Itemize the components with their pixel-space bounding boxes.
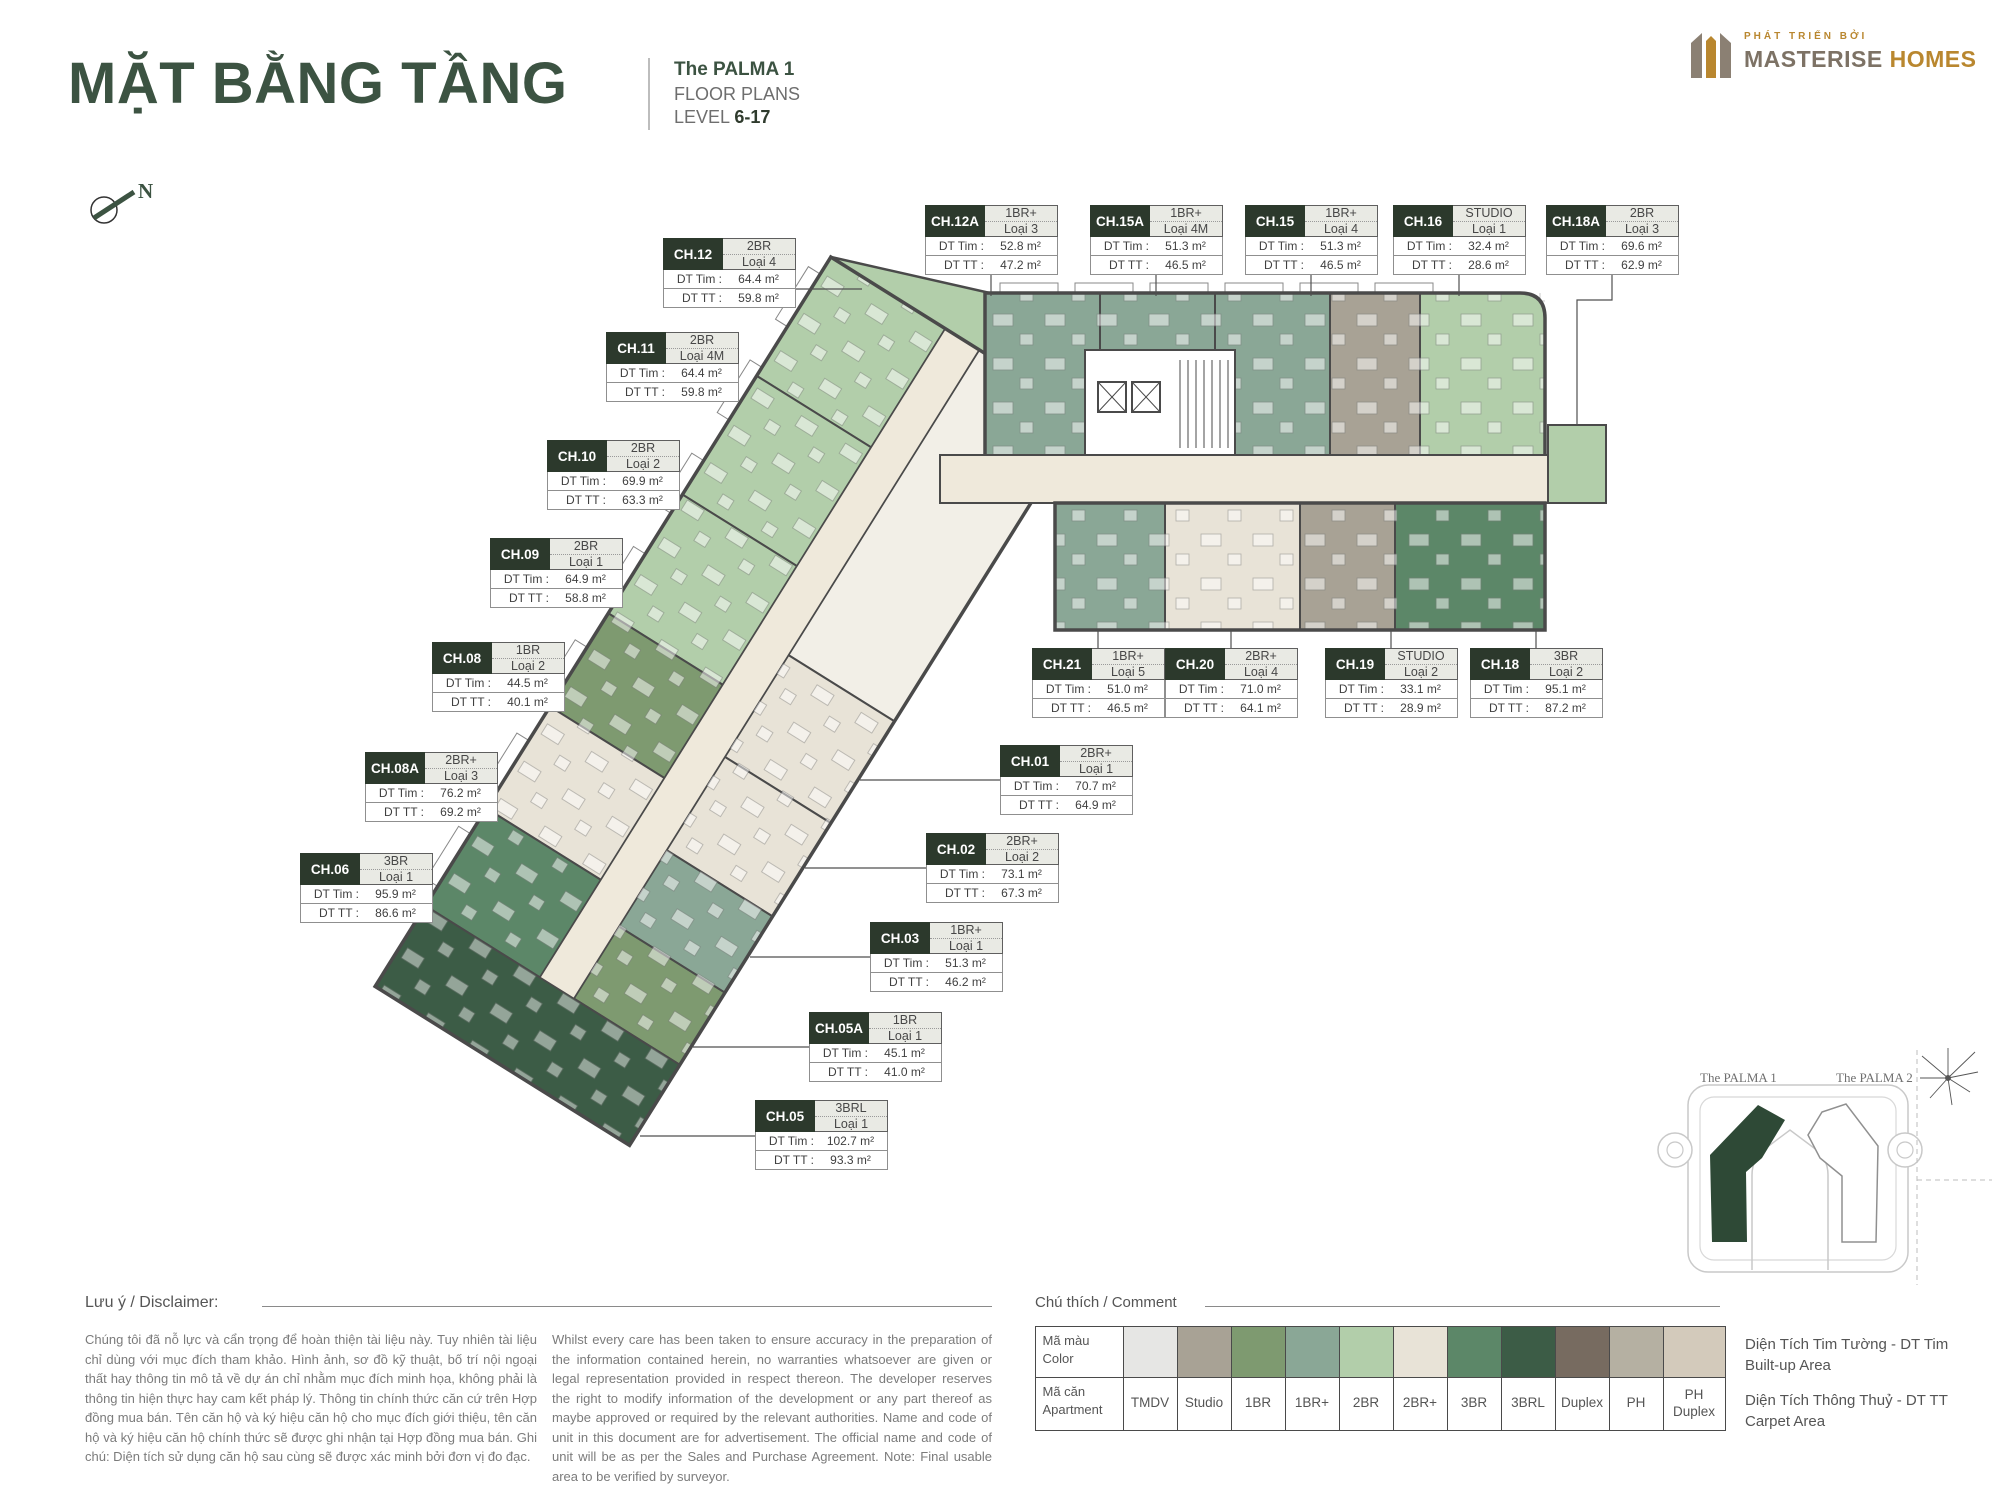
compass-label: N bbox=[138, 179, 153, 203]
legend-table: Mã màu Color Mã căn Apartment TMDV Studi… bbox=[1035, 1326, 1725, 1430]
dt-tt-value: 41.0 m² bbox=[868, 1065, 941, 1079]
unit-type: STUDIO bbox=[1453, 206, 1525, 222]
dt-tim-label: DT Tim : bbox=[756, 1134, 814, 1148]
dt-tt-label: DT TT : bbox=[871, 975, 929, 989]
unit-code: CH.01 bbox=[1000, 745, 1060, 777]
dt-tim-label: DT Tim : bbox=[1091, 239, 1149, 253]
unit-code: CH.11 bbox=[606, 332, 666, 364]
dt-tt-label: DT TT : bbox=[1166, 701, 1224, 715]
dt-tim-value: 76.2 m² bbox=[424, 786, 497, 800]
masterise-logo-mark bbox=[1688, 28, 1734, 80]
unit-variant: Loại 2 bbox=[1530, 665, 1602, 680]
dt-tt-label: DT TT : bbox=[810, 1065, 868, 1079]
minimap-compass-icon bbox=[1920, 1048, 1978, 1105]
legend-swatch bbox=[1555, 1326, 1610, 1378]
dt-tim-value: 102.7 m² bbox=[814, 1134, 887, 1148]
dt-tt-value: 87.2 m² bbox=[1529, 701, 1602, 715]
unit-variant: Loại 4 bbox=[723, 255, 795, 270]
legend-builtup-note: Diện Tích Tim Tường - DT Tim Built-up Ar… bbox=[1745, 1334, 1995, 1376]
unit-code: CH.10 bbox=[547, 440, 607, 472]
callout-ch18: CH.183BRLoại 2DT Tim :95.1 m²DT TT :87.2… bbox=[1470, 648, 1603, 718]
unit-variant: Loại 1 bbox=[550, 555, 622, 570]
unit-code: CH.15 bbox=[1245, 205, 1305, 237]
unit-variant: Loại 2 bbox=[492, 659, 564, 674]
dt-tt-label: DT TT : bbox=[1326, 701, 1384, 715]
logo-brand: MASTERISE HOMES bbox=[1744, 46, 1976, 73]
dt-tim-value: 45.1 m² bbox=[868, 1046, 941, 1060]
minimap-palma1-label: The PALMA 1 bbox=[1700, 1070, 1777, 1085]
unit-code: CH.12 bbox=[663, 238, 723, 270]
dt-tim-label: DT Tim : bbox=[1547, 239, 1605, 253]
unit-code: CH.02 bbox=[926, 833, 986, 865]
disclaimer-rule bbox=[262, 1306, 992, 1307]
dt-tt-value: 69.2 m² bbox=[424, 805, 497, 819]
unit-type: 1BR+ bbox=[1305, 206, 1377, 222]
dt-tt-label: DT TT : bbox=[607, 385, 665, 399]
unit-variant: Loại 1 bbox=[360, 870, 432, 885]
unit-code: CH.16 bbox=[1393, 205, 1453, 237]
callout-ch05a: CH.05A1BRLoại 1DT Tim :45.1 m²DT TT :41.… bbox=[809, 1012, 942, 1082]
dt-tt-label: DT TT : bbox=[301, 906, 359, 920]
dt-tim-value: 52.8 m² bbox=[984, 239, 1057, 253]
dt-tim-value: 73.1 m² bbox=[985, 867, 1058, 881]
dt-tim-value: 64.9 m² bbox=[549, 572, 622, 586]
dt-tt-label: DT TT : bbox=[548, 493, 606, 507]
legend-swatch bbox=[1447, 1326, 1502, 1378]
dt-tt-value: 59.8 m² bbox=[665, 385, 738, 399]
minimap-palma2-shape bbox=[1808, 1104, 1878, 1242]
project-name: The PALMA 1 bbox=[674, 58, 800, 83]
dt-tt-value: 46.5 m² bbox=[1304, 258, 1377, 272]
unit-code: CH.18 bbox=[1470, 648, 1530, 680]
callout-ch05: CH.053BRLLoại 1DT Tim :102.7 m²DT TT :93… bbox=[755, 1100, 888, 1170]
callout-ch11: CH.112BRLoại 4MDT Tim :64.4 m²DT TT :59.… bbox=[606, 332, 739, 402]
dt-tim-value: 64.4 m² bbox=[722, 272, 795, 286]
legend-type-label: TMDV bbox=[1123, 1377, 1178, 1431]
dt-tim-label: DT Tim : bbox=[548, 474, 606, 488]
dt-tt-value: 59.8 m² bbox=[722, 291, 795, 305]
legend-rule bbox=[1205, 1306, 1720, 1307]
dt-tim-label: DT Tim : bbox=[607, 366, 665, 380]
unit-type: 1BR+ bbox=[985, 206, 1057, 222]
dt-tim-value: 51.3 m² bbox=[1304, 239, 1377, 253]
unit-variant: Loại 4 bbox=[1225, 665, 1297, 680]
legend-type-label: PH Duplex bbox=[1663, 1377, 1726, 1431]
unit-code: CH.03 bbox=[870, 922, 930, 954]
dt-tim-label: DT Tim : bbox=[1326, 682, 1384, 696]
plan-annex bbox=[1548, 425, 1606, 503]
dt-tt-value: 40.1 m² bbox=[491, 695, 564, 709]
dt-tt-value: 47.2 m² bbox=[984, 258, 1057, 272]
unit-type: 2BR+ bbox=[1060, 746, 1132, 762]
dt-tim-label: DT Tim : bbox=[871, 956, 929, 970]
unit-code: CH.21 bbox=[1032, 648, 1092, 680]
masterise-logo: PHÁT TRIỂN BỞI MASTERISE HOMES bbox=[1688, 28, 1976, 80]
unit-variant: Loại 2 bbox=[986, 850, 1058, 865]
dt-tim-label: DT Tim : bbox=[1394, 239, 1452, 253]
dt-tt-label: DT TT : bbox=[491, 591, 549, 605]
legend-type-label: Studio bbox=[1177, 1377, 1232, 1431]
dt-tim-value: 69.6 m² bbox=[1605, 239, 1678, 253]
dt-tim-value: 51.3 m² bbox=[1149, 239, 1222, 253]
callout-ch15a: CH.15A1BR+Loại 4MDT Tim :51.3 m²DT TT :4… bbox=[1090, 205, 1223, 275]
dt-tt-label: DT TT : bbox=[433, 695, 491, 709]
unit-type: 2BR bbox=[1606, 206, 1678, 222]
unit-variant: Loại 4M bbox=[666, 349, 738, 364]
callout-ch16: CH.16STUDIOLoại 1DT Tim :32.4 m²DT TT :2… bbox=[1393, 205, 1526, 275]
dt-tt-label: DT TT : bbox=[1394, 258, 1452, 272]
callout-ch08: CH.081BRLoại 2DT Tim :44.5 m²DT TT :40.1… bbox=[432, 642, 565, 712]
unit-type: 1BR bbox=[492, 643, 564, 659]
minimap-palma2-label: The PALMA 2 bbox=[1836, 1070, 1913, 1085]
unit-type: 2BR+ bbox=[425, 753, 497, 769]
dt-tt-label: DT TT : bbox=[1547, 258, 1605, 272]
dt-tim-label: DT Tim : bbox=[1033, 682, 1091, 696]
unit-code: CH.08A bbox=[365, 752, 425, 784]
unit-variant: Loại 2 bbox=[1385, 665, 1457, 680]
floor-plan-page: N The PALMA 1 The PALMA 2 bbox=[0, 0, 2000, 1500]
level-value: 6-17 bbox=[734, 107, 770, 127]
callout-ch03: CH.031BR+Loại 1DT Tim :51.3 m²DT TT :46.… bbox=[870, 922, 1003, 992]
unit-type: 3BRL bbox=[815, 1101, 887, 1117]
dt-tim-label: DT Tim : bbox=[1166, 682, 1224, 696]
callout-ch06: CH.063BRLoại 1DT Tim :95.9 m²DT TT :86.6… bbox=[300, 853, 433, 923]
unit-type: 1BR bbox=[869, 1013, 941, 1029]
legend-swatch bbox=[1123, 1326, 1178, 1378]
unit-code: CH.06 bbox=[300, 853, 360, 885]
logo-tagline: PHÁT TRIỂN BỞI bbox=[1744, 31, 1976, 42]
dt-tim-label: DT Tim : bbox=[1246, 239, 1304, 253]
legend-swatch bbox=[1177, 1326, 1232, 1378]
dt-tt-label: DT TT : bbox=[927, 886, 985, 900]
unit-variant: Loại 1 bbox=[869, 1029, 941, 1044]
legend-type-label: Duplex bbox=[1555, 1377, 1610, 1431]
callout-ch01: CH.012BR+Loại 1DT Tim :70.7 m²DT TT :64.… bbox=[1000, 745, 1133, 815]
callout-ch20: CH.202BR+Loại 4DT Tim :71.0 m²DT TT :64.… bbox=[1165, 648, 1298, 718]
header-divider bbox=[648, 58, 650, 130]
dt-tim-label: DT Tim : bbox=[366, 786, 424, 800]
unit-type: 2BR bbox=[607, 441, 679, 457]
subtitle-floor-plans: FLOOR PLANS bbox=[674, 83, 800, 106]
dt-tim-label: DT Tim : bbox=[926, 239, 984, 253]
dt-tt-label: DT TT : bbox=[1471, 701, 1529, 715]
unit-type: 2BR bbox=[550, 539, 622, 555]
unit-variant: Loại 1 bbox=[930, 939, 1002, 954]
dt-tim-value: 64.4 m² bbox=[665, 366, 738, 380]
legend-swatch bbox=[1663, 1326, 1726, 1378]
unit-variant: Loại 3 bbox=[425, 769, 497, 784]
dt-tt-label: DT TT : bbox=[1246, 258, 1304, 272]
plan-north-wing bbox=[985, 283, 1545, 455]
legend-type-label: PH bbox=[1609, 1377, 1664, 1431]
unit-code: CH.15A bbox=[1090, 205, 1150, 237]
dt-tim-value: 69.9 m² bbox=[606, 474, 679, 488]
dt-tim-value: 51.3 m² bbox=[929, 956, 1002, 970]
callout-ch21: CH.211BR+Loại 5DT Tim :51.0 m²DT TT :46.… bbox=[1032, 648, 1165, 718]
dt-tt-value: 64.9 m² bbox=[1059, 798, 1132, 812]
legend-heading: Chú thích / Comment bbox=[1035, 1294, 1177, 1311]
unit-type: STUDIO bbox=[1385, 649, 1457, 665]
unit-variant: Loại 2 bbox=[607, 457, 679, 472]
dt-tim-value: 71.0 m² bbox=[1224, 682, 1297, 696]
unit-type: 2BR+ bbox=[1225, 649, 1297, 665]
dt-tt-label: DT TT : bbox=[1033, 701, 1091, 715]
page-title: MẶT BẰNG TẦNG bbox=[68, 50, 567, 117]
dt-tt-value: 28.9 m² bbox=[1384, 701, 1457, 715]
dt-tt-value: 86.6 m² bbox=[359, 906, 432, 920]
legend-type-label: 1BR+ bbox=[1285, 1377, 1340, 1431]
unit-variant: Loại 1 bbox=[1060, 762, 1132, 777]
dt-tt-label: DT TT : bbox=[1091, 258, 1149, 272]
dt-tim-value: 51.0 m² bbox=[1091, 682, 1164, 696]
unit-variant: Loại 5 bbox=[1092, 665, 1164, 680]
callout-ch12: CH.122BRLoại 4DT Tim :64.4 m²DT TT :59.8… bbox=[663, 238, 796, 308]
legend-apartment-label: Mã căn Apartment bbox=[1035, 1377, 1124, 1431]
dt-tim-label: DT Tim : bbox=[301, 887, 359, 901]
disclaimer-text-vi: Chúng tôi đã nỗ lực và cẩn trọng để hoàn… bbox=[85, 1330, 537, 1467]
dt-tim-label: DT Tim : bbox=[927, 867, 985, 881]
legend-swatch bbox=[1501, 1326, 1556, 1378]
dt-tt-value: 46.5 m² bbox=[1091, 701, 1164, 715]
unit-code: CH.12A bbox=[925, 205, 985, 237]
legend-carpet-note: Diện Tích Thông Thuỷ - DT TT Carpet Area bbox=[1745, 1390, 1995, 1432]
callout-ch08a: CH.08A2BR+Loại 3DT Tim :76.2 m²DT TT :69… bbox=[365, 752, 498, 822]
dt-tim-value: 44.5 m² bbox=[491, 676, 564, 690]
unit-code: CH.19 bbox=[1325, 648, 1385, 680]
plan-south-block bbox=[1055, 503, 1545, 630]
unit-code: CH.18A bbox=[1546, 205, 1606, 237]
legend-color-label: Mã màu Color bbox=[1035, 1326, 1124, 1378]
unit-variant: Loại 3 bbox=[985, 222, 1057, 237]
callout-ch02: CH.022BR+Loại 2DT Tim :73.1 m²DT TT :67.… bbox=[926, 833, 1059, 903]
unit-type: 2BR bbox=[723, 239, 795, 255]
disclaimer-text-en: Whilst every care has been taken to ensu… bbox=[552, 1330, 992, 1486]
dt-tt-value: 64.1 m² bbox=[1224, 701, 1297, 715]
unit-variant: Loại 4M bbox=[1150, 222, 1222, 237]
unit-variant: Loại 3 bbox=[1606, 222, 1678, 237]
callout-ch19: CH.19STUDIOLoại 2DT Tim :33.1 m²DT TT :2… bbox=[1325, 648, 1458, 718]
dt-tt-value: 67.3 m² bbox=[985, 886, 1058, 900]
unit-type: 1BR+ bbox=[930, 923, 1002, 939]
legend-swatch bbox=[1285, 1326, 1340, 1378]
unit-code: CH.05 bbox=[755, 1100, 815, 1132]
dt-tim-value: 95.9 m² bbox=[359, 887, 432, 901]
dt-tim-label: DT Tim : bbox=[664, 272, 722, 286]
dt-tim-label: DT Tim : bbox=[1001, 779, 1059, 793]
legend-swatch bbox=[1339, 1326, 1394, 1378]
dt-tt-value: 62.9 m² bbox=[1605, 258, 1678, 272]
minimap-palma1-shape bbox=[1710, 1105, 1785, 1242]
dt-tim-label: DT Tim : bbox=[433, 676, 491, 690]
unit-type: 3BR bbox=[360, 854, 432, 870]
unit-type: 3BR bbox=[1530, 649, 1602, 665]
dt-tim-value: 70.7 m² bbox=[1059, 779, 1132, 793]
unit-code: CH.05A bbox=[809, 1012, 869, 1044]
legend-type-label: 3BRL bbox=[1501, 1377, 1556, 1431]
unit-type: 2BR bbox=[666, 333, 738, 349]
dt-tt-value: 63.3 m² bbox=[606, 493, 679, 507]
disclaimer-heading: Lưu ý / Disclaimer: bbox=[85, 1294, 218, 1312]
legend-type-label: 1BR bbox=[1231, 1377, 1286, 1431]
legend-type-label: 2BR bbox=[1339, 1377, 1394, 1431]
dt-tt-value: 46.5 m² bbox=[1149, 258, 1222, 272]
unit-type: 1BR+ bbox=[1092, 649, 1164, 665]
unit-type: 2BR+ bbox=[986, 834, 1058, 850]
callout-ch15: CH.151BR+Loại 4DT Tim :51.3 m²DT TT :46.… bbox=[1245, 205, 1378, 275]
unit-code: CH.09 bbox=[490, 538, 550, 570]
callout-ch10: CH.102BRLoại 2DT Tim :69.9 m²DT TT :63.3… bbox=[547, 440, 680, 510]
dt-tim-label: DT Tim : bbox=[1471, 682, 1529, 696]
legend-swatch bbox=[1393, 1326, 1448, 1378]
dt-tt-label: DT TT : bbox=[1001, 798, 1059, 812]
unit-type: 1BR+ bbox=[1150, 206, 1222, 222]
dt-tim-value: 95.1 m² bbox=[1529, 682, 1602, 696]
dt-tim-value: 32.4 m² bbox=[1452, 239, 1525, 253]
dt-tt-label: DT TT : bbox=[664, 291, 722, 305]
dt-tim-label: DT Tim : bbox=[491, 572, 549, 586]
compass-icon: N bbox=[91, 179, 153, 223]
callout-ch12a: CH.12A1BR+Loại 3DT Tim :52.8 m²DT TT :47… bbox=[925, 205, 1058, 275]
header-subtitle: The PALMA 1 FLOOR PLANS LEVEL 6-17 bbox=[674, 58, 800, 129]
dt-tim-label: DT Tim : bbox=[810, 1046, 868, 1060]
unit-code: CH.08 bbox=[432, 642, 492, 674]
dt-tt-value: 93.3 m² bbox=[814, 1153, 887, 1167]
unit-variant: Loại 1 bbox=[815, 1117, 887, 1132]
dt-tt-label: DT TT : bbox=[366, 805, 424, 819]
level-line: LEVEL 6-17 bbox=[674, 106, 800, 129]
unit-variant: Loại 4 bbox=[1305, 222, 1377, 237]
minimap: The PALMA 1 The PALMA 2 bbox=[1658, 1048, 1992, 1285]
plan-corridor-main bbox=[940, 455, 1580, 503]
dt-tt-value: 28.6 m² bbox=[1452, 258, 1525, 272]
dt-tim-value: 33.1 m² bbox=[1384, 682, 1457, 696]
legend-type-label: 2BR+ bbox=[1393, 1377, 1448, 1431]
dt-tt-value: 46.2 m² bbox=[929, 975, 1002, 989]
legend-type-label: 3BR bbox=[1447, 1377, 1502, 1431]
dt-tt-label: DT TT : bbox=[926, 258, 984, 272]
legend-swatch bbox=[1609, 1326, 1664, 1378]
unit-code: CH.20 bbox=[1165, 648, 1225, 680]
unit-variant: Loại 1 bbox=[1453, 222, 1525, 237]
legend-swatch bbox=[1231, 1326, 1286, 1378]
dt-tt-value: 58.8 m² bbox=[549, 591, 622, 605]
callout-ch18a: CH.18A2BRLoại 3DT Tim :69.6 m²DT TT :62.… bbox=[1546, 205, 1679, 275]
callout-ch09: CH.092BRLoại 1DT Tim :64.9 m²DT TT :58.8… bbox=[490, 538, 623, 608]
dt-tt-label: DT TT : bbox=[756, 1153, 814, 1167]
